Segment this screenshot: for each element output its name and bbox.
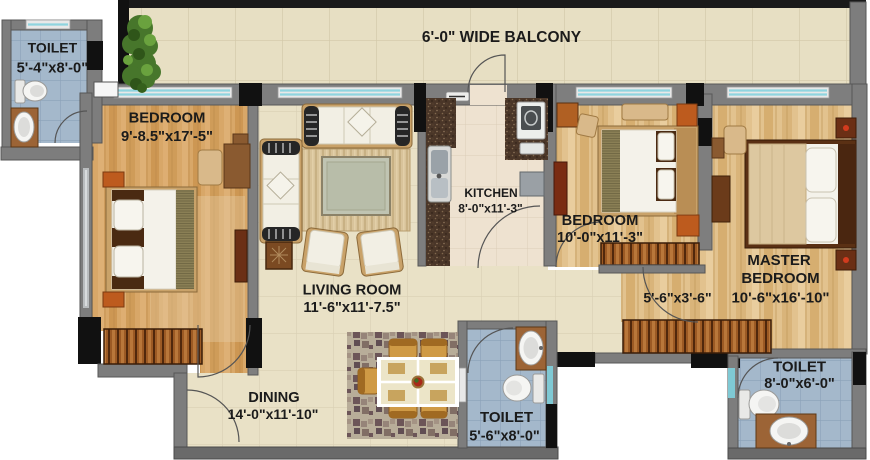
svg-text:6'-0" WIDE BALCONY: 6'-0" WIDE BALCONY: [422, 29, 582, 46]
svg-text:MASTER: MASTER: [747, 252, 811, 269]
svg-text:BEDROOM: BEDROOM: [129, 111, 206, 127]
svg-text:DINING: DINING: [248, 390, 299, 406]
svg-text:10'-6"x16'-10": 10'-6"x16'-10": [731, 290, 829, 307]
svg-text:BEDROOM: BEDROOM: [562, 213, 639, 229]
svg-text:5'-4"x8'-0": 5'-4"x8'-0": [17, 60, 89, 76]
svg-text:8'-0"x11'-3": 8'-0"x11'-3": [458, 202, 522, 216]
svg-text:BEDROOM: BEDROOM: [741, 270, 819, 287]
svg-text:TOILET: TOILET: [28, 39, 78, 55]
svg-text:5'-6"x8'-0": 5'-6"x8'-0": [469, 429, 540, 445]
svg-text:LIVING ROOM: LIVING ROOM: [303, 282, 402, 298]
svg-text:11'-6"x11'-7.5": 11'-6"x11'-7.5": [303, 300, 400, 316]
svg-text:KITCHEN: KITCHEN: [464, 186, 517, 200]
svg-text:10'-0"x11'-3": 10'-0"x11'-3": [557, 230, 643, 246]
svg-text:9'-8.5"x17'-5": 9'-8.5"x17'-5": [121, 129, 213, 145]
svg-text:TOILET: TOILET: [480, 409, 533, 426]
svg-text:8'-0"x6'-0": 8'-0"x6'-0": [764, 376, 835, 392]
svg-text:TOILET: TOILET: [773, 359, 826, 376]
svg-text:14'-0"x11'-10": 14'-0"x11'-10": [228, 406, 319, 422]
svg-text:5'-6"x3'-6": 5'-6"x3'-6": [643, 290, 711, 306]
